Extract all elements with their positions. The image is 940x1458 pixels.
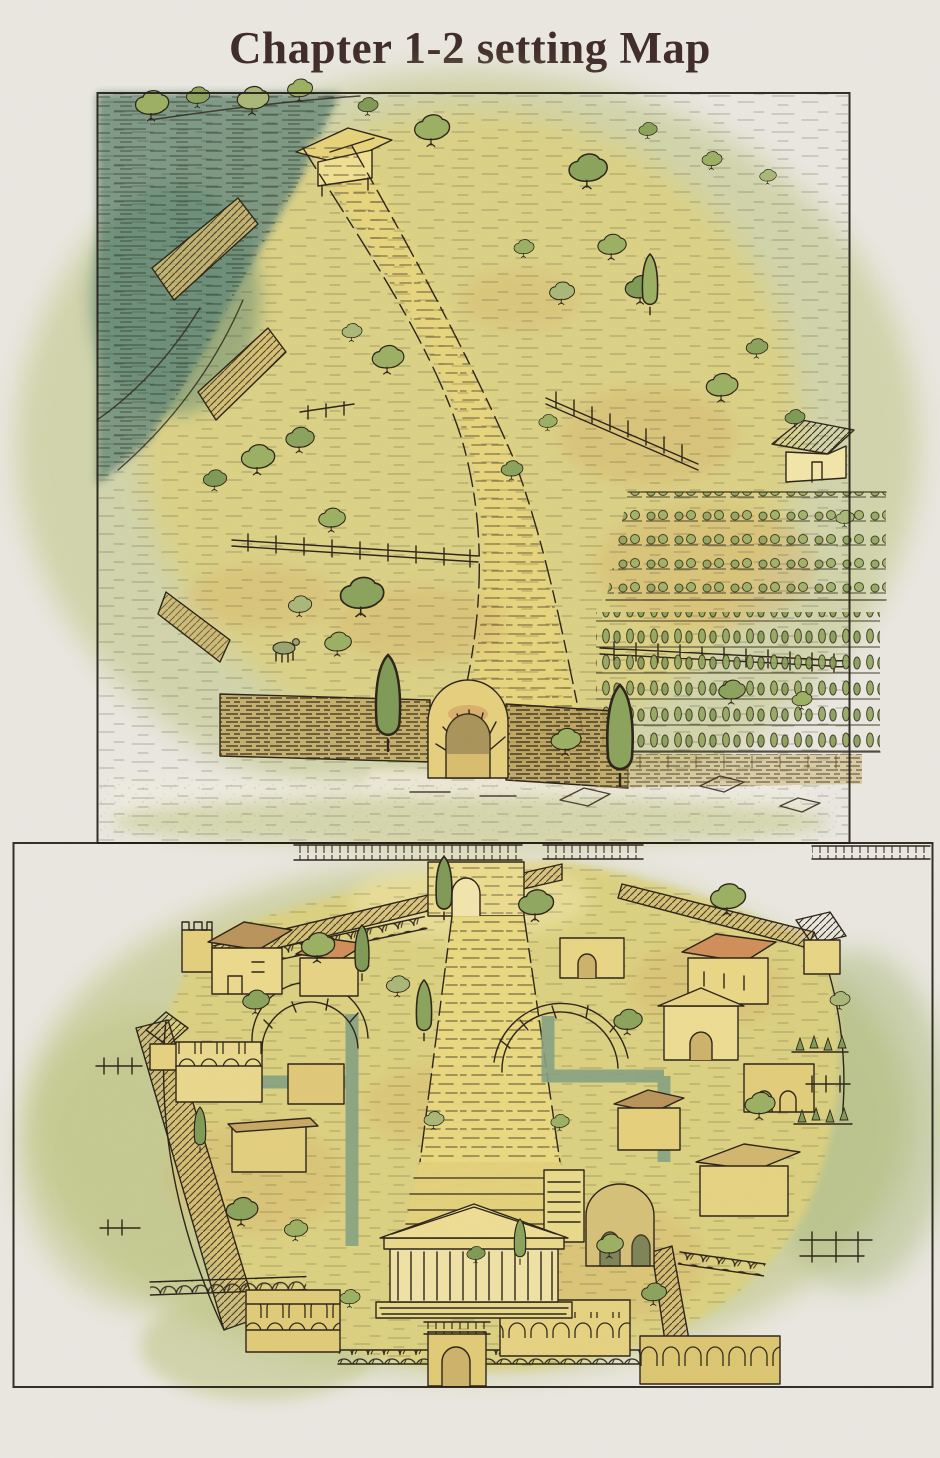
page: { "page": { "title": "Chapter 1-2 settin… [0, 0, 940, 1458]
map-illustrations [0, 0, 940, 1458]
setting-map-page: Chapter 1-2 setting Map [0, 0, 940, 1458]
paper-grain [0, 0, 940, 1458]
